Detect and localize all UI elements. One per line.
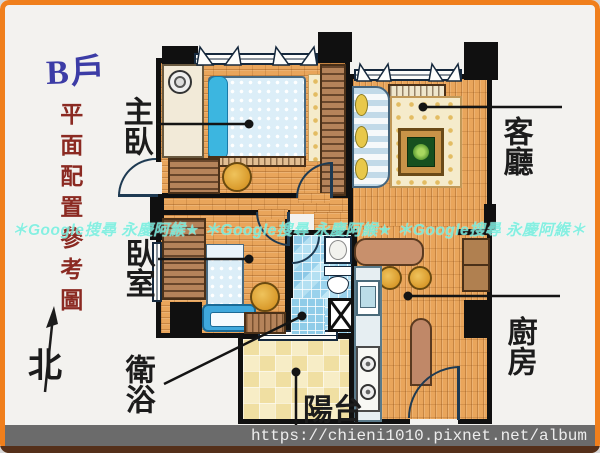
label-master-bedroom: 主臥 [118, 96, 152, 166]
curtain-icon [429, 64, 443, 81]
label-living-room: 客廳 [498, 116, 532, 186]
label-bathroom: 衛浴 [120, 354, 154, 426]
label-kitchen: 廚房 [502, 316, 536, 386]
pipe-shaft-x-icon [330, 300, 352, 330]
curtain-icon [377, 64, 391, 81]
label-north: 北 [28, 348, 62, 386]
curtain-icon [273, 47, 289, 65]
curtain-icon [447, 64, 461, 81]
label-balcony: 陽台 [303, 394, 363, 428]
label-bedroom: 臥室 [120, 238, 154, 308]
plan-subtitle: 平面配置參考圖 [56, 102, 82, 322]
footer-strip [0, 446, 600, 453]
curtain-icon [357, 64, 371, 81]
floor-plan-page: B戶 平面配置參考圖 主臥 客廳 臥室 衛浴 廚房 陽台 北 ＊Google搜尋… [0, 0, 600, 453]
watermark-text: ＊Google搜尋 永慶阿緱★ ＊Google搜尋 永慶阿緱★ ＊Google搜… [12, 218, 590, 240]
footer-bar: https://chieni1010.pixnet.net/album [5, 425, 595, 446]
leader-dot [298, 312, 307, 321]
curtain-icon [301, 47, 317, 65]
leader-dot [245, 255, 254, 264]
leader-line-bathroom [164, 316, 302, 384]
curtain-icon [197, 47, 213, 65]
unit-label: B戶 [45, 43, 107, 94]
leader-dot [419, 103, 428, 112]
footer-url: https://chieni1010.pixnet.net/album [251, 427, 595, 445]
leader-dot [404, 292, 413, 301]
curtain-icon [225, 47, 241, 65]
leader-dot [292, 368, 301, 377]
leader-dot [245, 120, 254, 129]
